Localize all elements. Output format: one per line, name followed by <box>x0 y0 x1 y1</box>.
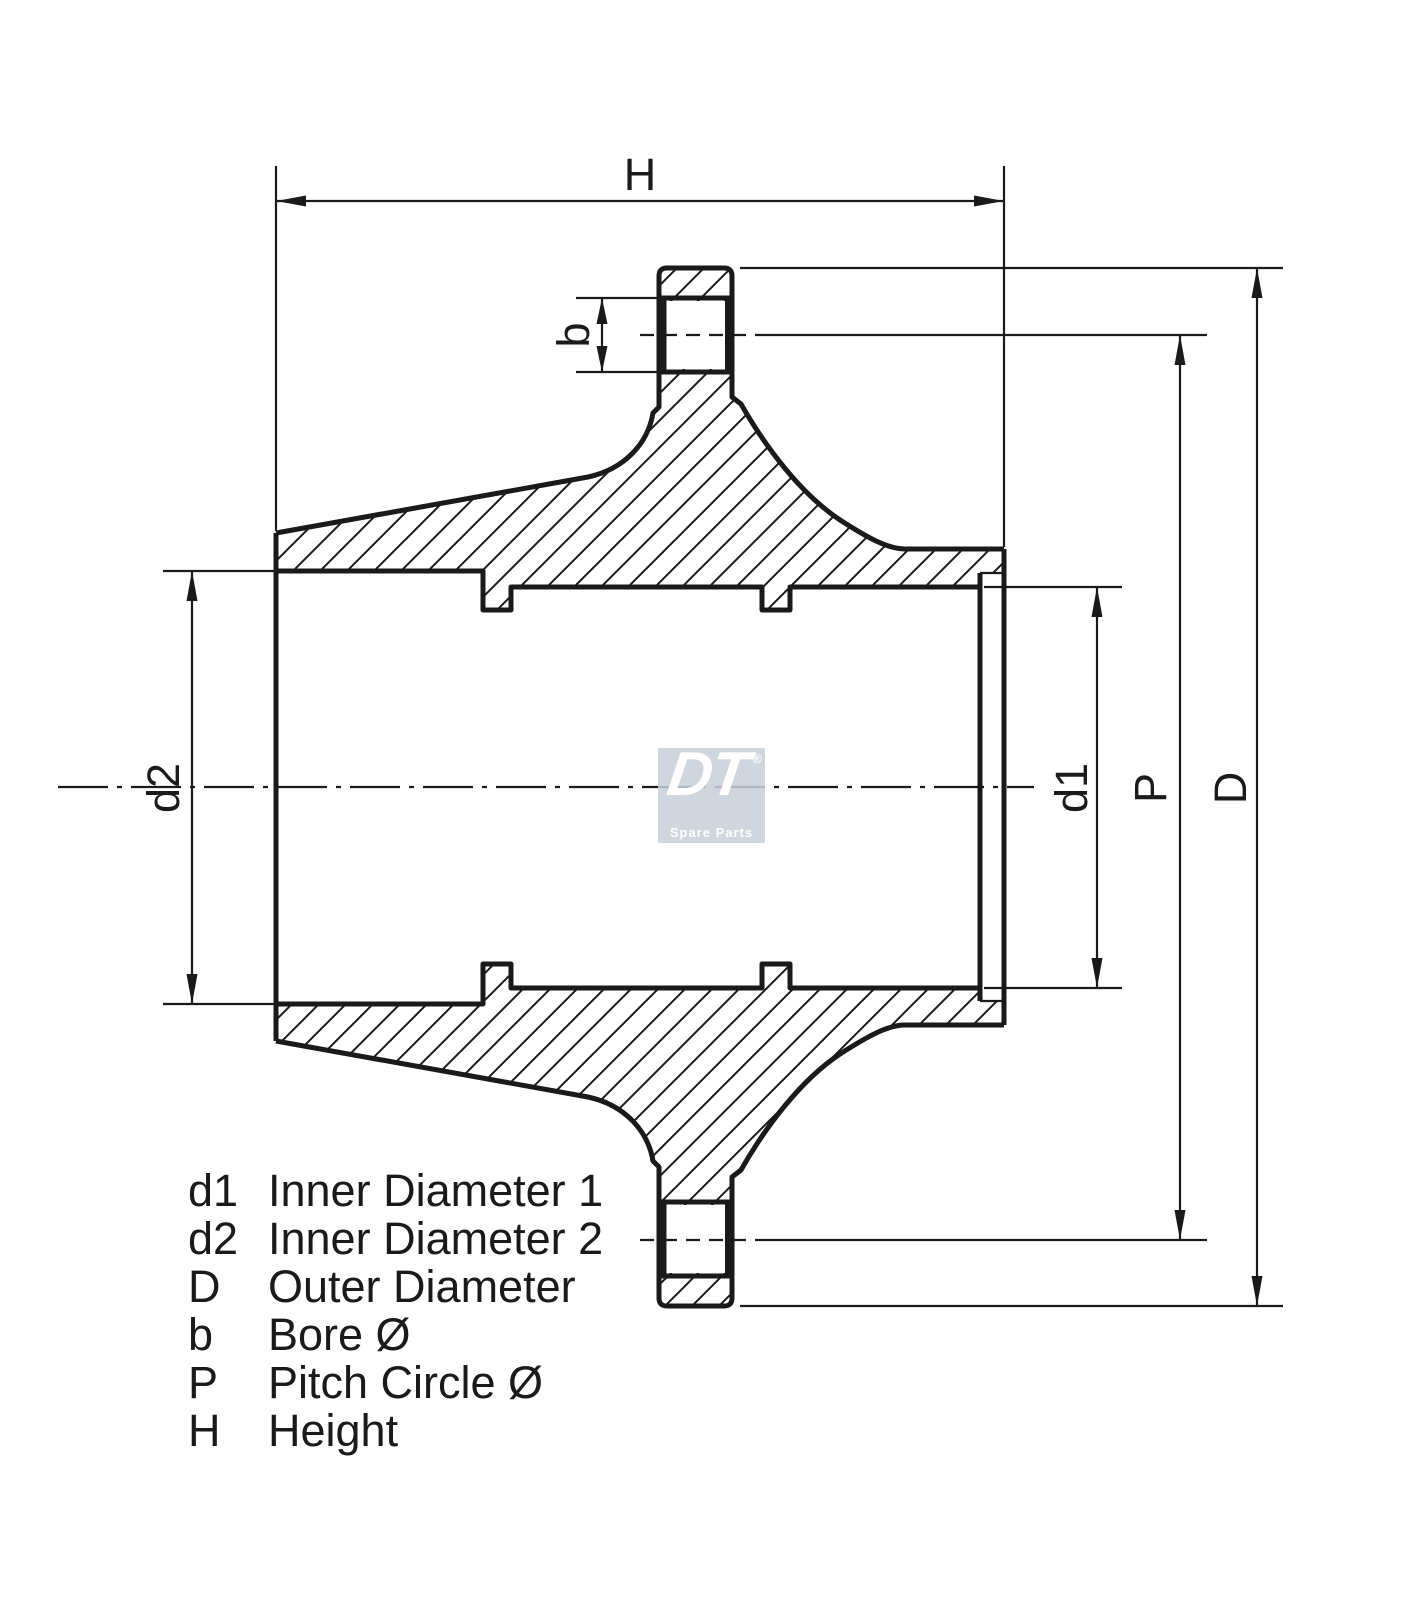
legend-desc-d1: Inner Diameter 1 <box>268 1165 603 1216</box>
d1-label: d1 <box>1046 763 1097 813</box>
b-arrow-bottom <box>597 346 608 372</box>
P-arrow-bottom <box>1175 1210 1186 1240</box>
P-label: P <box>1125 773 1176 803</box>
D-arrow-bottom <box>1252 1276 1263 1306</box>
H-arrow-right <box>974 196 1004 207</box>
legend: d1 Inner Diameter 1 d2 Inner Diameter 2 … <box>188 1165 603 1456</box>
legend-symbol-d2: d2 <box>188 1213 238 1264</box>
legend-symbol-d1: d1 <box>188 1165 238 1216</box>
legend-desc-d2: Inner Diameter 2 <box>268 1213 603 1264</box>
d1-arrow-bottom <box>1092 958 1103 988</box>
dt-watermark: DT ® Spare Parts <box>658 748 765 843</box>
dt-logo: DT <box>663 738 752 812</box>
legend-symbol-D: D <box>188 1261 221 1312</box>
legend-symbol-H: H <box>188 1405 221 1456</box>
P-arrow-top <box>1175 335 1186 365</box>
legend-symbol-P: P <box>188 1357 218 1408</box>
d2-arrow-bottom <box>187 974 198 1004</box>
b-arrow-top <box>597 298 608 324</box>
b-label: b <box>548 322 599 347</box>
center-lines <box>58 335 1034 1240</box>
legend-desc-D: Outer Diameter <box>268 1261 576 1312</box>
legend-desc-P: Pitch Circle Ø <box>268 1357 543 1408</box>
legend-desc-H: Height <box>268 1405 399 1456</box>
dt-watermark-subtitle: Spare Parts <box>658 825 765 840</box>
d2-arrow-top <box>187 571 198 601</box>
technical-drawing-page: H b d2 d1 <box>0 0 1426 1600</box>
H-label: H <box>624 149 657 200</box>
D-label: D <box>1205 772 1256 805</box>
legend-symbol-b: b <box>188 1309 213 1360</box>
H-arrow-left <box>276 196 306 207</box>
d1-arrow-top <box>1092 587 1103 617</box>
legend-desc-b: Bore Ø <box>268 1309 411 1360</box>
D-arrow-top <box>1252 268 1263 298</box>
d2-label: d2 <box>138 763 189 813</box>
registered-trademark-icon: ® <box>752 751 762 766</box>
upper-wall-section <box>276 268 1004 610</box>
